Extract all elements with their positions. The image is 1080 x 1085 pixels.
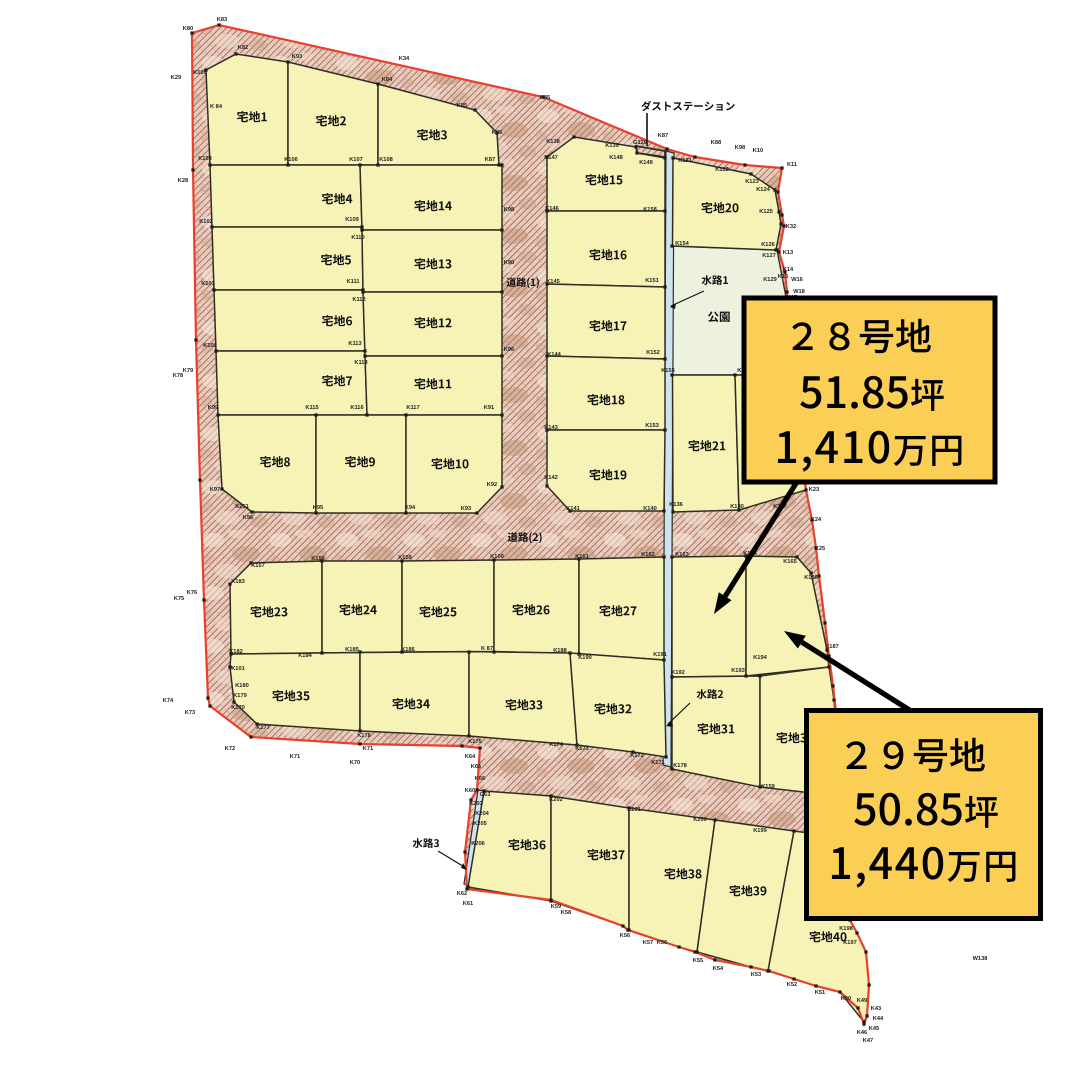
svg-text:K124: K124 <box>756 187 770 193</box>
svg-text:K55: K55 <box>693 958 703 964</box>
svg-text:K174: K174 <box>549 742 563 748</box>
svg-text:K165: K165 <box>783 559 797 565</box>
svg-text:K74: K74 <box>163 698 174 704</box>
svg-text:K13: K13 <box>783 250 793 256</box>
svg-text:K99: K99 <box>208 405 218 411</box>
svg-text:K129: K129 <box>763 277 777 283</box>
svg-text:K110: K110 <box>351 235 364 241</box>
svg-text:K105: K105 <box>193 70 207 76</box>
svg-text:K179: K179 <box>233 693 247 699</box>
svg-text:K178: K178 <box>357 733 371 739</box>
svg-text:K183: K183 <box>231 579 245 585</box>
svg-text:K143: K143 <box>544 425 558 431</box>
svg-text:K144: K144 <box>547 352 561 358</box>
svg-text:K52: K52 <box>787 982 797 988</box>
svg-text:K59: K59 <box>551 904 561 910</box>
svg-text:K180: K180 <box>235 683 249 689</box>
svg-text:K157: K157 <box>251 563 265 569</box>
svg-text:W16: W16 <box>791 277 803 283</box>
svg-text:K29: K29 <box>171 75 181 81</box>
svg-text:K34: K34 <box>399 56 410 62</box>
svg-text:K65: K65 <box>471 764 481 770</box>
svg-text:K152: K152 <box>646 350 660 356</box>
svg-text:K44: K44 <box>873 1016 884 1022</box>
svg-text:K47: K47 <box>863 1038 873 1044</box>
svg-text:K203: K203 <box>469 801 483 807</box>
svg-text:K98: K98 <box>735 145 745 151</box>
svg-text:K46: K46 <box>857 1030 867 1036</box>
svg-text:K66: K66 <box>475 776 485 782</box>
svg-text:K158: K158 <box>311 556 325 562</box>
svg-text:K73: K73 <box>185 710 195 716</box>
svg-text:K92: K92 <box>487 482 497 488</box>
svg-text:K201: K201 <box>627 807 641 813</box>
svg-text:K79: K79 <box>183 368 193 374</box>
svg-text:K50: K50 <box>841 996 851 1002</box>
svg-text:K75: K75 <box>174 596 184 602</box>
svg-text:K198: K198 <box>839 926 853 932</box>
svg-text:K10: K10 <box>753 148 763 154</box>
svg-text:K123: K123 <box>745 179 759 185</box>
svg-text:K186: K186 <box>401 647 415 653</box>
svg-text:K58: K58 <box>561 910 571 916</box>
svg-text:K138: K138 <box>546 139 560 145</box>
svg-text:K184: K184 <box>298 653 312 659</box>
svg-text:K101: K101 <box>231 666 245 672</box>
svg-text:K78: K78 <box>173 373 183 379</box>
svg-text:K139: K139 <box>605 143 619 149</box>
svg-text:K49: K49 <box>857 998 867 1004</box>
svg-text:K153: K153 <box>645 423 659 429</box>
svg-text:K149: K149 <box>639 160 653 166</box>
svg-text:K122: K122 <box>715 167 729 173</box>
svg-text:K71: K71 <box>290 754 300 760</box>
svg-text:K113: K113 <box>348 341 361 347</box>
svg-text:K161: K161 <box>575 554 589 560</box>
svg-text:K100: K100 <box>203 343 217 349</box>
svg-text:K172: K172 <box>630 753 644 759</box>
svg-text:K 84: K 84 <box>210 104 223 110</box>
svg-text:K23: K23 <box>809 487 819 493</box>
svg-text:K94: K94 <box>405 505 416 511</box>
svg-text:K145: K145 <box>546 279 560 285</box>
svg-text:K115: K115 <box>305 405 318 411</box>
svg-text:K106: K106 <box>284 157 298 163</box>
svg-text:K85: K85 <box>540 95 550 101</box>
svg-text:K71: K71 <box>363 746 373 752</box>
svg-text:K96: K96 <box>243 515 253 521</box>
svg-text:K45: K45 <box>869 1026 879 1032</box>
svg-text:K84: K84 <box>382 77 393 83</box>
svg-text:K112: K112 <box>352 297 365 303</box>
svg-text:K117: K117 <box>406 405 419 411</box>
svg-text:K177: K177 <box>256 725 270 731</box>
svg-text:K82: K82 <box>238 45 248 51</box>
svg-text:K15: K15 <box>778 274 788 280</box>
svg-text:K200: K200 <box>693 817 707 823</box>
svg-text:K 87: K 87 <box>481 646 493 652</box>
svg-text:K204: K204 <box>475 811 489 817</box>
svg-text:K88: K88 <box>711 140 721 146</box>
svg-text:K95: K95 <box>313 505 323 511</box>
svg-text:W138: W138 <box>973 956 988 962</box>
svg-text:K125: K125 <box>759 209 773 215</box>
svg-text:K136: K136 <box>669 502 683 508</box>
svg-text:K51: K51 <box>815 990 825 996</box>
svg-text:K158: K158 <box>643 207 657 213</box>
svg-text:K111: K111 <box>347 279 360 285</box>
svg-text:K159: K159 <box>761 784 775 790</box>
svg-text:K175: K175 <box>468 739 482 745</box>
svg-text:K187: K187 <box>825 644 839 650</box>
svg-text:K186: K186 <box>804 575 818 581</box>
svg-text:K163: K163 <box>675 552 689 558</box>
svg-text:K206: K206 <box>471 841 485 847</box>
svg-text:K126: K126 <box>761 242 775 248</box>
svg-text:K91: K91 <box>484 405 494 411</box>
svg-text:K197: K197 <box>843 940 857 946</box>
svg-text:K62: K62 <box>457 891 467 897</box>
svg-text:G120: G120 <box>633 140 647 146</box>
svg-text:K107: K107 <box>349 157 363 163</box>
svg-text:K202: K202 <box>549 797 563 803</box>
svg-text:K148: K148 <box>609 155 623 161</box>
svg-text:K43: K43 <box>871 1006 881 1012</box>
svg-text:K87: K87 <box>658 133 668 139</box>
svg-text:K11: K11 <box>787 162 797 168</box>
svg-text:K121: K121 <box>678 158 692 164</box>
svg-text:K83: K83 <box>217 17 227 23</box>
svg-text:K251: K251 <box>235 504 249 510</box>
svg-text:K141: K141 <box>566 506 580 512</box>
svg-text:K146: K146 <box>545 206 559 212</box>
svg-text:K191: K191 <box>653 652 667 658</box>
svg-text:K142: K142 <box>544 475 558 481</box>
svg-text:K87: K87 <box>485 157 495 163</box>
svg-text:K182: K182 <box>229 649 243 655</box>
svg-text:K32: K32 <box>786 224 796 230</box>
svg-text:K86: K86 <box>492 130 502 136</box>
svg-text:K76: K76 <box>187 590 197 596</box>
svg-text:K199: K199 <box>753 828 767 834</box>
svg-text:G63: G63 <box>480 792 491 798</box>
svg-text:K170: K170 <box>231 705 245 711</box>
svg-text:K72: K72 <box>225 746 235 752</box>
svg-text:K116: K116 <box>350 405 363 411</box>
svg-text:K147: K147 <box>544 155 558 161</box>
svg-text:K103: K103 <box>198 156 212 162</box>
svg-text:K85: K85 <box>457 103 467 109</box>
svg-text:K14: K14 <box>783 267 794 273</box>
svg-text:K70: K70 <box>350 760 360 766</box>
svg-text:K162: K162 <box>641 552 655 558</box>
svg-text:K160: K160 <box>490 554 504 560</box>
svg-text:K54: K54 <box>713 966 724 972</box>
svg-text:K154: K154 <box>675 241 689 247</box>
svg-text:K28: K28 <box>178 178 188 184</box>
svg-text:K188: K188 <box>553 648 567 654</box>
svg-text:K114: K114 <box>354 360 368 366</box>
svg-text:K194: K194 <box>753 655 767 661</box>
svg-text:K24: K24 <box>811 517 822 523</box>
svg-text:K93: K93 <box>461 506 471 512</box>
svg-text:K101: K101 <box>201 281 215 287</box>
svg-text:K97: K97 <box>210 487 220 493</box>
svg-text:K173: K173 <box>575 746 589 752</box>
svg-text:K130: K130 <box>730 504 744 510</box>
svg-text:K64: K64 <box>465 754 476 760</box>
svg-text:K151: K151 <box>645 278 659 284</box>
svg-text:K171: K171 <box>651 760 665 766</box>
svg-text:K102: K102 <box>199 219 213 225</box>
svg-text:K25: K25 <box>815 546 825 552</box>
svg-text:K205: K205 <box>473 821 487 827</box>
svg-text:K108: K108 <box>379 157 393 163</box>
svg-text:K93: K93 <box>292 54 302 60</box>
svg-text:K109: K109 <box>345 217 359 223</box>
svg-text:K178: K178 <box>673 763 687 769</box>
svg-text:K96: K96 <box>504 347 514 353</box>
svg-text:K90: K90 <box>504 260 514 266</box>
svg-text:K185: K185 <box>345 647 359 653</box>
svg-text:K61: K61 <box>463 901 473 907</box>
svg-text:K80: K80 <box>183 26 193 32</box>
svg-text:K155: K155 <box>661 368 675 374</box>
svg-text:K98: K98 <box>504 207 514 213</box>
svg-text:K190: K190 <box>578 655 592 661</box>
svg-text:K192: K192 <box>671 670 685 676</box>
svg-text:K56: K56 <box>657 940 667 946</box>
svg-text:K140: K140 <box>643 506 657 512</box>
svg-text:K159: K159 <box>398 555 412 561</box>
svg-text:K57: K57 <box>643 940 653 946</box>
svg-text:K193: K193 <box>731 668 745 674</box>
svg-text:K56: K56 <box>620 933 630 939</box>
svg-text:K53: K53 <box>751 972 761 978</box>
svg-text:K127: K127 <box>762 253 776 259</box>
svg-text:K60: K60 <box>465 788 475 794</box>
